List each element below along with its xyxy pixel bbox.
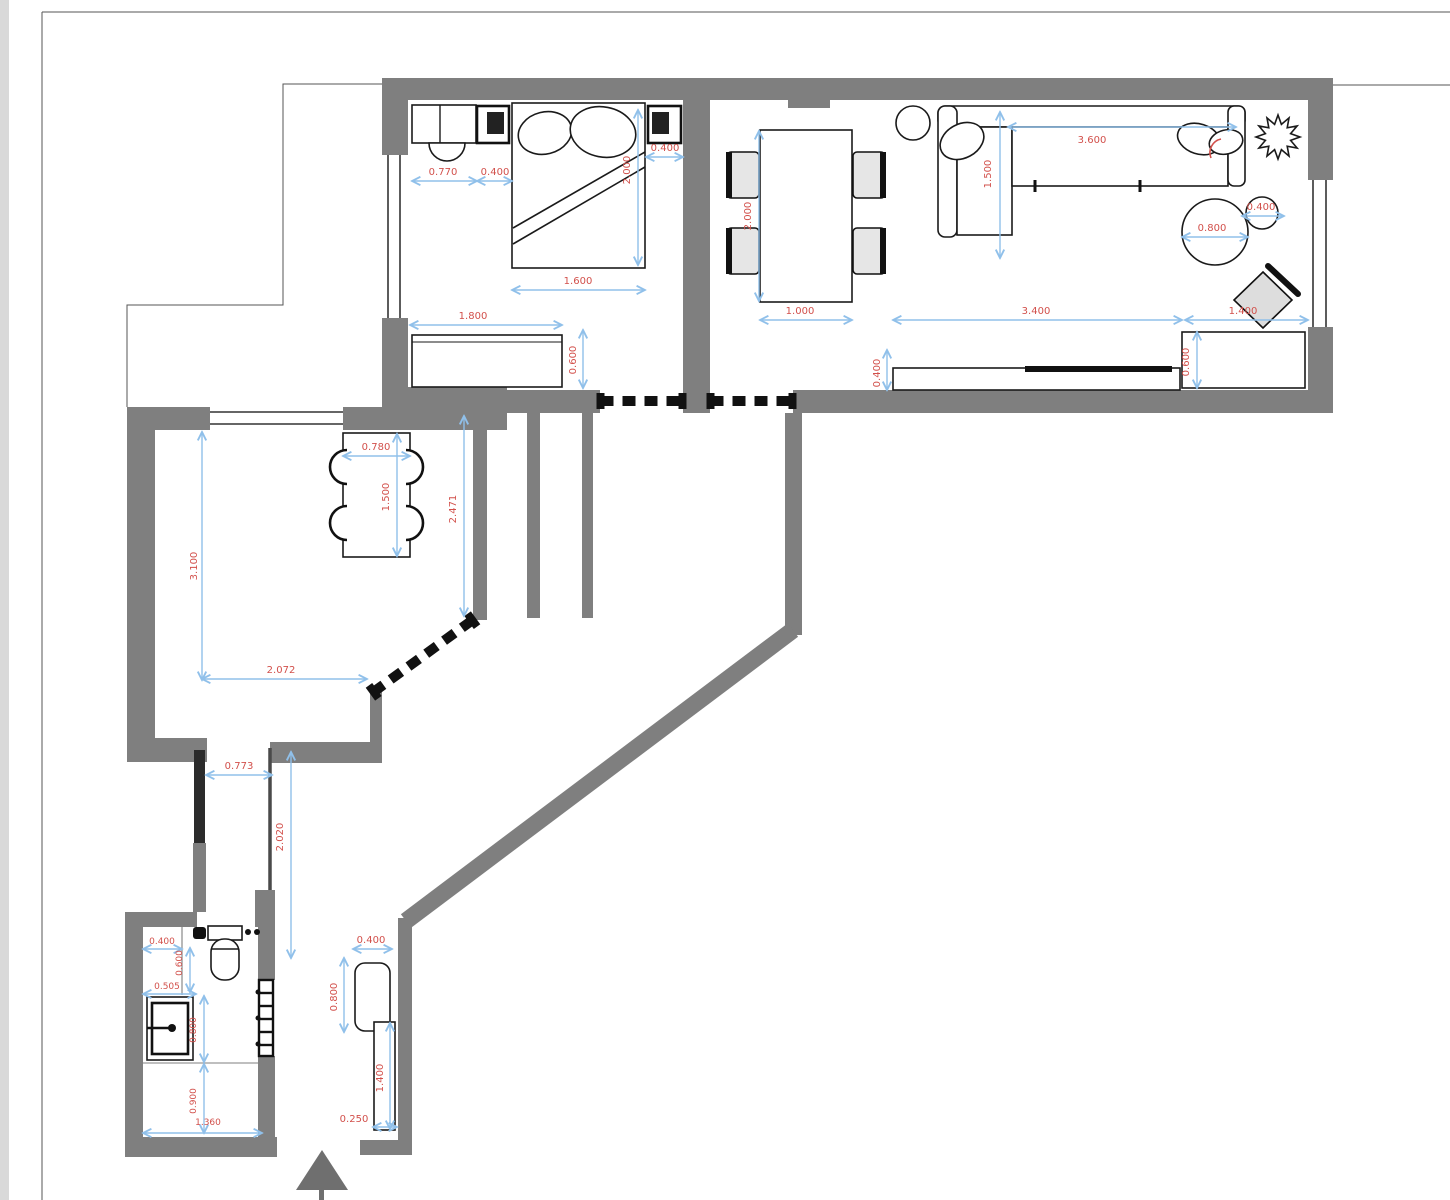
dim-living-1400: 1.400 — [1229, 306, 1258, 317]
dim-bath-0400: 0.400 — [149, 937, 175, 947]
dim-living-0400: 0.400 — [1247, 202, 1276, 213]
dim-entry-0400: 0.400 — [357, 935, 386, 946]
wall-bedroom-living-divider — [683, 100, 710, 413]
round-stool — [896, 106, 930, 140]
living-room — [726, 106, 1305, 390]
dim-bedroom-0400b: 0.400 — [651, 143, 680, 154]
dim-bedroom-0600: 0.600 — [568, 346, 579, 375]
dim-bedroom-1600: 1.600 — [564, 276, 593, 287]
dim-living-2000: 2.000 — [743, 202, 754, 231]
bedroom-window — [383, 155, 407, 318]
dim-kitchen-2471: 2.471 — [448, 495, 459, 524]
dimension-labels: 0.770 0.400 0.400 2.000 1.600 1.800 0.60… — [149, 135, 1275, 1128]
wall-block-bedroom-sw — [382, 387, 507, 430]
page-edge-strip — [0, 0, 9, 1200]
wall-bedroom-left-upper — [382, 100, 408, 155]
kitchen-chair — [406, 506, 423, 540]
wall-corridor-left — [193, 843, 206, 912]
wall-kitchen-top-right — [343, 407, 382, 430]
dim-bath-0900: 0.900 — [189, 1088, 199, 1114]
bedroom — [412, 101, 681, 387]
towel-radiator — [256, 980, 274, 1056]
wall-diagonal — [406, 630, 793, 921]
wall-bathroom-right-lower — [258, 1056, 275, 1140]
dim-living-1000: 1.000 — [786, 306, 815, 317]
plant — [1256, 115, 1300, 159]
side-cabinet — [1182, 332, 1305, 388]
wall-entry-right — [398, 918, 412, 1155]
wall-top — [382, 78, 1333, 100]
entrance-arrow — [296, 1150, 348, 1200]
wall-kitchen-left — [127, 430, 155, 738]
wall-closet-3 — [582, 413, 593, 618]
wall-closet-1 — [473, 430, 487, 620]
wall-bathroom-left — [125, 912, 143, 1157]
sink — [147, 997, 193, 1060]
bathroom-door-jamb — [194, 750, 205, 845]
wall-bathroom-bottom — [125, 1137, 277, 1157]
toilet — [208, 926, 242, 980]
kitchen-chair — [330, 506, 347, 540]
nightstand-right-lamp — [652, 112, 669, 134]
hook — [254, 929, 260, 935]
dim-bedroom-2000: 2.000 — [622, 156, 633, 185]
dim-entry-1400: 1.400 — [375, 1064, 386, 1093]
dim-living-1500: 1.500 — [983, 160, 994, 189]
dim-living-0800: 0.800 — [1198, 223, 1227, 234]
wall-hall-right — [785, 413, 802, 635]
nightstand-left-lamp — [487, 112, 504, 134]
dim-entry-0250: 0.250 — [340, 1114, 369, 1125]
kitchen-sliding-door — [366, 611, 481, 700]
bedroom-cabinet — [412, 105, 476, 143]
dim-bedroom-1800: 1.800 — [459, 311, 488, 322]
wall-living-right-upper — [1308, 100, 1333, 180]
vanity-chair — [429, 143, 465, 161]
dim-living-3400: 3.400 — [1022, 306, 1051, 317]
wall-bedroom-bottom — [507, 390, 600, 413]
kitchen-window — [210, 408, 343, 429]
dim-bath-0505: 0.505 — [154, 982, 180, 992]
wall-top-notch — [788, 100, 830, 108]
dim-kitchen-0780: 0.780 — [362, 442, 391, 453]
kitchen-chair — [406, 450, 423, 484]
dim-living-0400-tv: 0.400 — [872, 359, 883, 388]
wall-living-bottom — [793, 390, 1333, 413]
living-sliding-door — [707, 393, 797, 409]
bedroom-sliding-door — [597, 393, 687, 409]
wall-kitchen-top-left — [127, 407, 210, 430]
kitchen-chair — [330, 450, 347, 484]
wall-bedroom-left-lower — [382, 318, 408, 390]
wall-kitchen-bottom-right — [270, 742, 380, 763]
floorplan-page: 0.770 0.400 0.400 2.000 1.600 1.800 0.60… — [0, 0, 1450, 1200]
dim-living-3600: 3.600 — [1078, 135, 1107, 146]
doors — [366, 393, 797, 701]
dim-bedroom-0400a: 0.400 — [481, 167, 510, 178]
floorplan-svg: 0.770 0.400 0.400 2.000 1.600 1.800 0.60… — [0, 0, 1450, 1200]
accent-chair — [1234, 266, 1298, 328]
dim-bath-1360: 1.360 — [195, 1118, 221, 1128]
dim-entry-0800: 0.800 — [329, 983, 340, 1012]
site-boundary-left — [127, 84, 382, 407]
dim-bath-0800: 0.800 — [189, 1017, 199, 1043]
dim-hall-0773: 0.773 — [225, 761, 254, 772]
wall-corridor-stub — [255, 890, 275, 927]
entry-bench — [355, 963, 390, 1031]
dim-kitchen-2072: 2.072 — [267, 665, 296, 676]
wall-bathroom-right-upper — [258, 927, 275, 980]
living-window — [1309, 180, 1332, 327]
tv — [1025, 366, 1172, 372]
dim-bath-0600: 0.600 — [175, 950, 185, 976]
dimension-lines — [143, 110, 1308, 1133]
wall-bathroom-top — [125, 912, 197, 927]
dim-kitchen-1500: 1.500 — [381, 483, 392, 512]
hook — [245, 929, 251, 935]
flush-plate — [193, 927, 206, 939]
bedroom-dresser — [412, 335, 562, 387]
dim-hall-2020: 2.020 — [275, 823, 286, 852]
dim-bedroom-0770: 0.770 — [429, 167, 458, 178]
dining-table — [760, 130, 852, 302]
dim-kitchen-3100: 3.100 — [189, 552, 200, 581]
wall-entry-bottom — [360, 1140, 412, 1155]
wall-closet-2 — [527, 413, 540, 618]
dim-living-0600: 0.600 — [1181, 348, 1192, 377]
